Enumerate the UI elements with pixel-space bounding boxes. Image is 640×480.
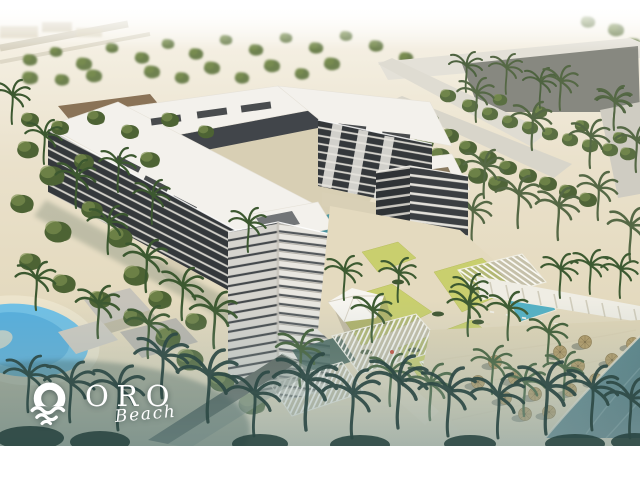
top-haze (0, 8, 640, 50)
frame-bottom (0, 446, 640, 480)
frame-top (0, 0, 640, 9)
sun-over-waves-icon (30, 381, 76, 427)
screenshot-root: ORO Beach (0, 0, 640, 480)
logo-text: ORO Beach (85, 381, 177, 425)
oro-beach-logo: ORO Beach (30, 381, 177, 427)
logo-sub-text: Beach (114, 404, 177, 425)
